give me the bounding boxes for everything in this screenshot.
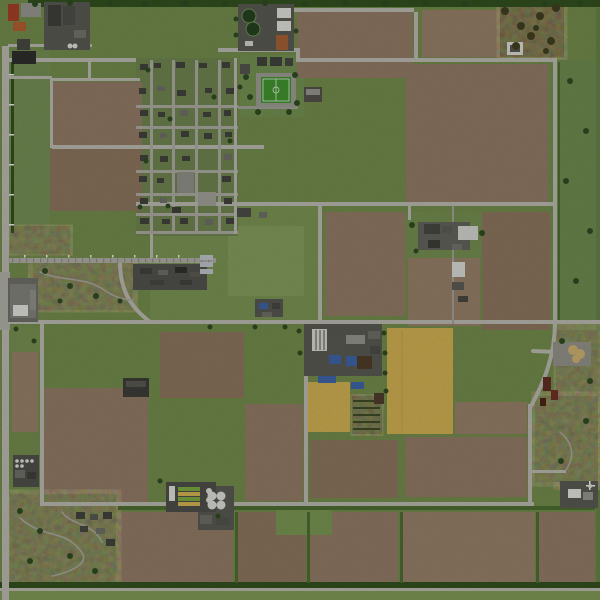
farm-map-image [0, 0, 600, 600]
grain-texture [0, 0, 600, 600]
farm-map-canvas [0, 0, 600, 600]
map-layers [0, 0, 600, 600]
